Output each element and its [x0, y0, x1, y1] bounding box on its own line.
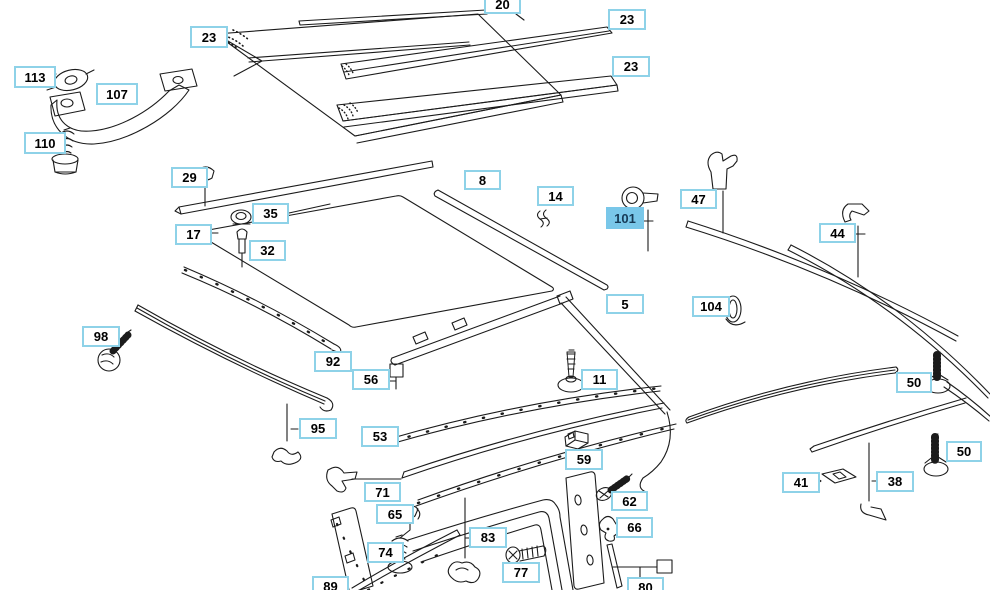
seal-strip-53	[387, 386, 661, 445]
callout-44[interactable]: 44	[819, 223, 856, 243]
parts-diagram-page: 2320232311310711029173532814101474410451…	[0, 0, 990, 590]
callout-23[interactable]: 23	[612, 56, 650, 77]
moulding-95	[135, 305, 333, 464]
callout-65[interactable]: 65	[376, 504, 414, 524]
callout-89[interactable]: 89	[312, 576, 349, 590]
callout-113[interactable]: 113	[14, 66, 56, 88]
callout-35[interactable]: 35	[252, 203, 289, 224]
callout-77[interactable]: 77	[502, 562, 540, 583]
callout-50[interactable]: 50	[946, 441, 982, 462]
callout-23[interactable]: 23	[608, 9, 646, 30]
callout-32[interactable]: 32	[249, 240, 286, 261]
callout-74[interactable]: 74	[367, 542, 404, 563]
callout-53[interactable]: 53	[361, 426, 399, 447]
callout-23[interactable]: 23	[190, 26, 228, 48]
callout-101-selected[interactable]: 101	[606, 207, 644, 229]
callout-107[interactable]: 107	[96, 83, 138, 105]
callout-8[interactable]: 8	[464, 170, 501, 190]
callout-29[interactable]: 29	[171, 167, 208, 188]
callout-98[interactable]: 98	[82, 326, 120, 347]
screw-50-lower	[924, 434, 948, 476]
callout-92[interactable]: 92	[314, 351, 352, 372]
clip-56	[390, 364, 403, 389]
rear-moulding-lower	[788, 245, 990, 421]
callout-41[interactable]: 41	[782, 472, 820, 493]
callout-110[interactable]: 110	[24, 132, 66, 154]
pillar-thin-strip	[607, 544, 622, 588]
callout-14[interactable]: 14	[537, 186, 574, 206]
callout-17[interactable]: 17	[175, 224, 212, 245]
callout-11[interactable]: 11	[581, 369, 618, 390]
connector-80	[613, 560, 672, 577]
callout-20[interactable]: 20	[484, 0, 521, 14]
callout-47[interactable]: 47	[680, 189, 717, 209]
callout-59[interactable]: 59	[565, 449, 603, 470]
clip-59	[565, 431, 588, 449]
sunroof-panel	[216, 14, 563, 143]
callout-80[interactable]: 80	[627, 577, 664, 590]
callout-38[interactable]: 38	[876, 471, 914, 492]
callout-50[interactable]: 50	[896, 372, 932, 393]
callout-56[interactable]: 56	[352, 369, 390, 390]
callout-62[interactable]: 62	[611, 491, 648, 511]
parts-diagram-artwork	[0, 0, 990, 590]
callout-66[interactable]: 66	[616, 517, 653, 538]
side-moulding-8	[434, 190, 608, 290]
callout-95[interactable]: 95	[299, 418, 337, 439]
front-moulding-strip	[175, 161, 433, 214]
pin-32	[237, 229, 247, 267]
callout-5[interactable]: 5	[606, 294, 644, 314]
callout-104[interactable]: 104	[692, 296, 730, 317]
callout-83[interactable]: 83	[469, 527, 507, 548]
reinforcement-strip-92	[182, 267, 341, 353]
b-pillar-cover	[566, 472, 604, 589]
roof-strip-23-upper	[341, 27, 612, 79]
clip-14	[538, 210, 550, 227]
quarter-moulding-wide	[686, 367, 898, 423]
hook-38-end	[861, 504, 886, 520]
screw-77	[506, 546, 546, 563]
callout-71[interactable]: 71	[364, 482, 401, 502]
